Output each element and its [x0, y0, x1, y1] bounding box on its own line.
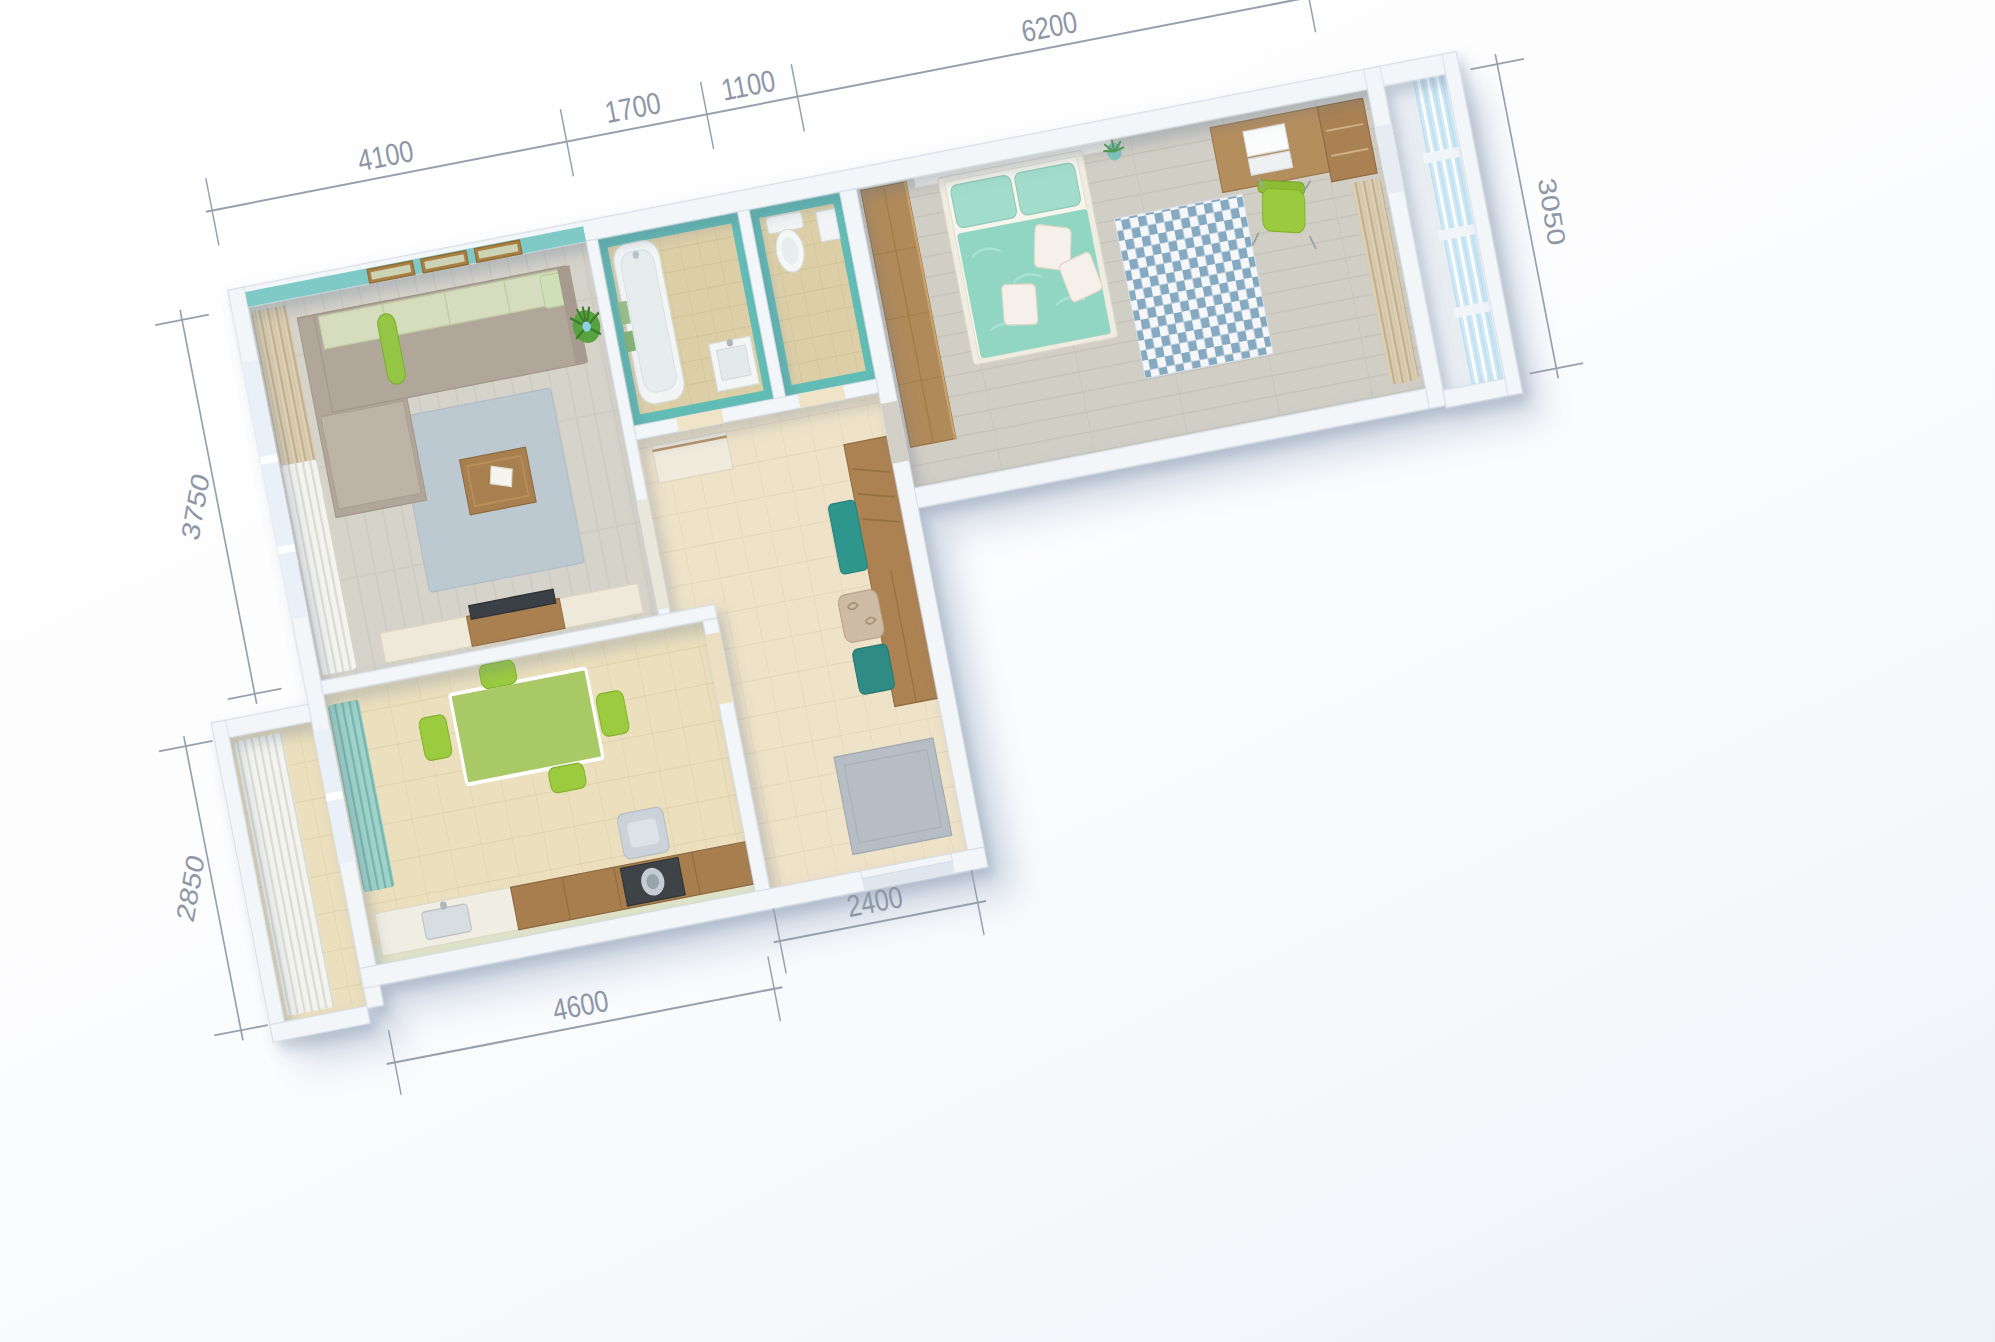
- coffee-table: [460, 447, 537, 515]
- dimension-label-4100: 4100: [355, 134, 416, 178]
- sofa-seat-pad: [321, 401, 421, 509]
- floor-plan-render: 4100 1700 1100 6200 3050 3750 2850: [0, 0, 1995, 1342]
- floor-plan-scene: 4100 1700 1100 6200 3050 3750 2850: [0, 0, 1995, 1342]
- laptop: [1243, 124, 1293, 176]
- dimension-label-6200: 6200: [1019, 5, 1080, 49]
- wash-basin: [709, 335, 760, 392]
- dimension-label-1100: 1100: [718, 64, 778, 108]
- magazine: [490, 466, 512, 487]
- doormat: [834, 738, 952, 854]
- dimension-label-2850: 2850: [171, 851, 210, 925]
- dimension-label-3050: 3050: [1532, 176, 1571, 247]
- dimension-label-4600: 4600: [550, 984, 611, 1028]
- patterned-pouf: [837, 589, 885, 644]
- dimension-label-1700: 1700: [602, 86, 663, 130]
- dimension-label-3750: 3750: [176, 470, 215, 544]
- dotted-pillow: [1001, 284, 1038, 325]
